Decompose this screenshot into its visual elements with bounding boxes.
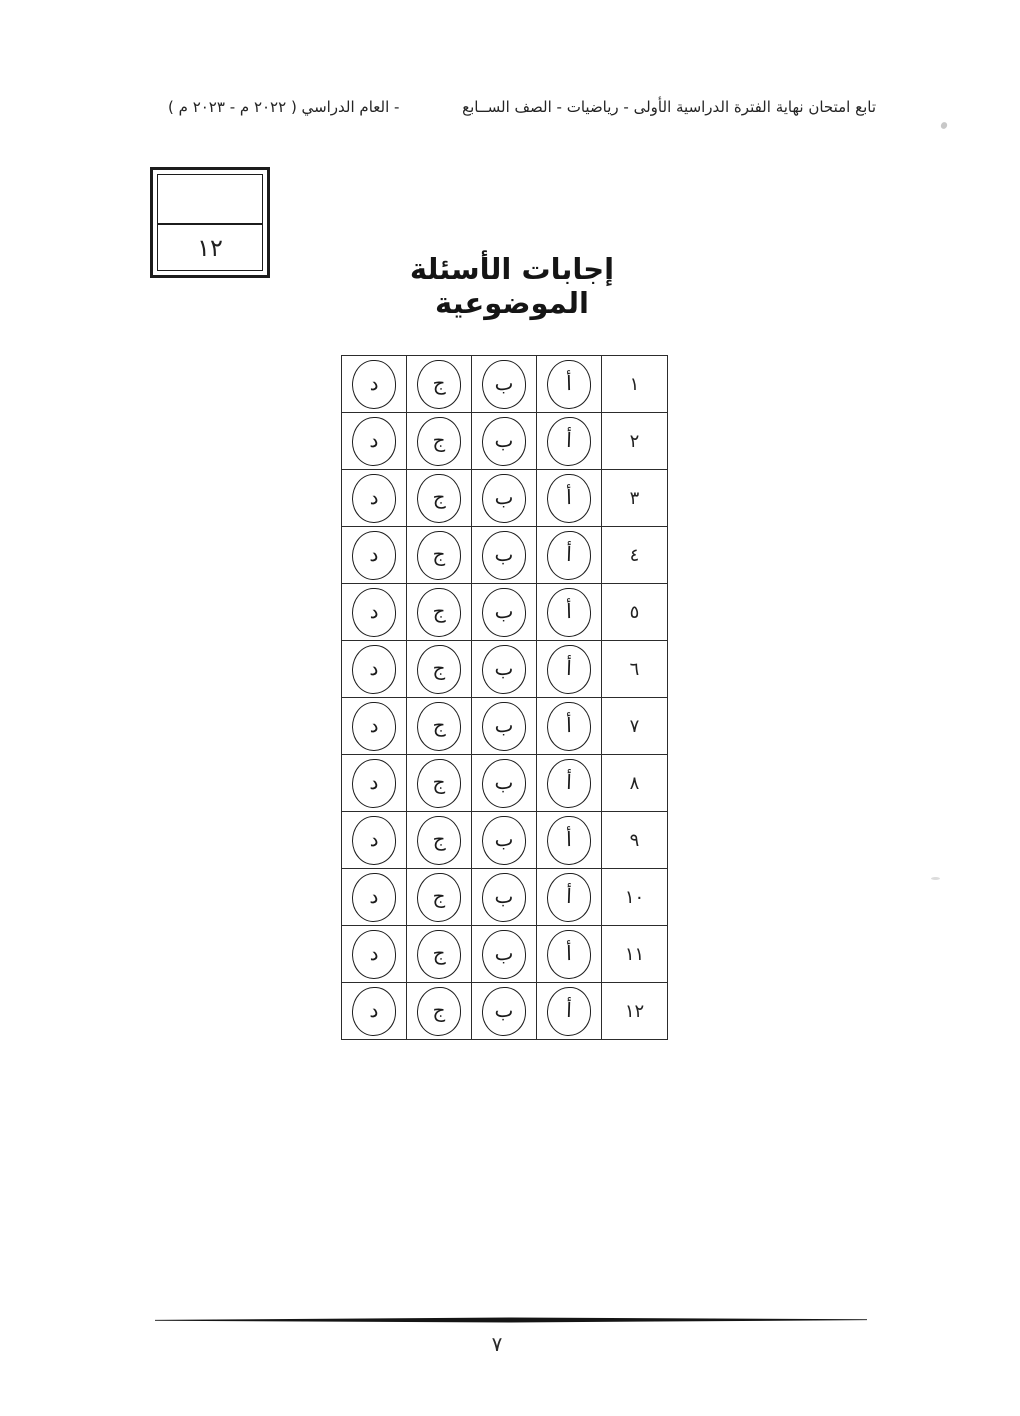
choice-cell: د bbox=[342, 755, 407, 812]
circled-choice-letter: د bbox=[351, 530, 397, 581]
question-number: ١٠ bbox=[602, 869, 668, 926]
answer-row: ١٢أبجد bbox=[342, 983, 668, 1040]
question-number: ٤ bbox=[602, 527, 668, 584]
choice-cell: ب bbox=[472, 926, 537, 983]
grade-box: ١٢ bbox=[150, 167, 270, 278]
circled-choice-letter: ج bbox=[416, 416, 462, 467]
circled-choice-letter: ج bbox=[416, 587, 461, 637]
choice-cell: ج bbox=[407, 812, 472, 869]
answer-row: ٦أبجد bbox=[342, 641, 668, 698]
scan-artifact bbox=[931, 877, 940, 880]
choice-cell: ب bbox=[472, 641, 537, 698]
circled-choice-letter: د bbox=[351, 644, 397, 695]
question-number: ٧ bbox=[602, 698, 668, 755]
circled-choice-letter: ب bbox=[481, 530, 527, 581]
answer-row: ١أبجد bbox=[342, 356, 668, 413]
choice-cell: ب bbox=[472, 356, 537, 413]
answer-row: ١٠أبجد bbox=[342, 869, 668, 926]
question-number: ٣ bbox=[602, 470, 668, 527]
answers-table: ١أبجد٢أبجد٣أبجد٤أبجد٥أبجد٦أبجد٧أبجد٨أبجد… bbox=[341, 355, 668, 1040]
choice-cell: ب bbox=[472, 470, 537, 527]
choice-cell: أ bbox=[537, 584, 602, 641]
page-header: تابع امتحان نهاية الفترة الدراسية الأولى… bbox=[168, 98, 876, 116]
circled-choice-letter: أ bbox=[546, 473, 591, 523]
choice-cell: ج bbox=[407, 527, 472, 584]
choice-cell: ج bbox=[407, 755, 472, 812]
grade-box-empty-cell bbox=[158, 175, 262, 225]
choice-cell: أ bbox=[537, 413, 602, 470]
question-number: ٢ bbox=[602, 413, 668, 470]
circled-choice-letter: د bbox=[351, 872, 397, 923]
circled-choice-letter: ب bbox=[481, 815, 526, 865]
circled-choice-letter: ج bbox=[416, 872, 462, 923]
question-number: ٨ bbox=[602, 755, 668, 812]
circled-choice-letter: ب bbox=[481, 644, 527, 695]
circled-choice-letter: ب bbox=[481, 587, 526, 637]
answer-row: ٩أبجد bbox=[342, 812, 668, 869]
answers-table-body: ١أبجد٢أبجد٣أبجد٤أبجد٥أبجد٦أبجد٧أبجد٨أبجد… bbox=[342, 356, 668, 1040]
circled-choice-letter: أ bbox=[546, 359, 591, 409]
circled-choice-letter: د bbox=[351, 986, 397, 1037]
circled-choice-letter: د bbox=[351, 929, 396, 979]
scanned-exam-page: تابع امتحان نهاية الفترة الدراسية الأولى… bbox=[0, 0, 1020, 1416]
choice-cell: ب bbox=[472, 983, 537, 1040]
choice-cell: د bbox=[342, 869, 407, 926]
circled-choice-letter: أ bbox=[546, 587, 591, 637]
answer-row: ٢أبجد bbox=[342, 413, 668, 470]
circled-choice-letter: أ bbox=[546, 758, 592, 809]
answer-row: ٤أبجد bbox=[342, 527, 668, 584]
choice-cell: د bbox=[342, 641, 407, 698]
choice-cell: د bbox=[342, 413, 407, 470]
circled-choice-letter: ب bbox=[481, 758, 527, 809]
choice-cell: ب bbox=[472, 527, 537, 584]
circled-choice-letter: د bbox=[351, 587, 396, 637]
choice-cell: أ bbox=[537, 356, 602, 413]
answer-row: ٨أبجد bbox=[342, 755, 668, 812]
circled-choice-letter: د bbox=[351, 815, 396, 865]
answer-row: ١١أبجد bbox=[342, 926, 668, 983]
circled-choice-letter: ج bbox=[416, 359, 461, 409]
choice-cell: د bbox=[342, 527, 407, 584]
question-number: ٥ bbox=[602, 584, 668, 641]
page-number: ٧ bbox=[477, 1332, 517, 1356]
choice-cell: ج bbox=[407, 584, 472, 641]
circled-choice-letter: أ bbox=[546, 929, 591, 979]
circled-choice-letter: أ bbox=[546, 530, 592, 581]
choice-cell: ب bbox=[472, 869, 537, 926]
question-number: ١ bbox=[602, 356, 668, 413]
page-title: إجابات الأسئلة الموضوعية bbox=[372, 252, 652, 320]
circled-choice-letter: أ bbox=[546, 644, 592, 695]
choice-cell: أ bbox=[537, 869, 602, 926]
circled-choice-letter: ب bbox=[481, 872, 527, 923]
circled-choice-letter: ج bbox=[416, 701, 461, 751]
circled-choice-letter: ج bbox=[416, 644, 462, 695]
circled-choice-letter: د bbox=[351, 701, 396, 751]
choice-cell: أ bbox=[537, 470, 602, 527]
circled-choice-letter: أ bbox=[546, 815, 591, 865]
circled-choice-letter: ب bbox=[481, 473, 526, 523]
answer-row: ٣أبجد bbox=[342, 470, 668, 527]
circled-choice-letter: ج bbox=[416, 473, 461, 523]
choice-cell: أ bbox=[537, 698, 602, 755]
choice-cell: ب bbox=[472, 698, 537, 755]
choice-cell: د bbox=[342, 470, 407, 527]
circled-choice-letter: د bbox=[351, 416, 397, 467]
question-number: ٩ bbox=[602, 812, 668, 869]
footer-rule bbox=[155, 1317, 867, 1323]
circled-choice-letter: د bbox=[351, 473, 396, 523]
choice-cell: ج bbox=[407, 470, 472, 527]
choice-cell: د bbox=[342, 983, 407, 1040]
answer-row: ٧أبجد bbox=[342, 698, 668, 755]
circled-choice-letter: ج bbox=[416, 530, 462, 581]
grade-box-score: ١٢ bbox=[158, 225, 262, 270]
circled-choice-letter: ب bbox=[481, 986, 527, 1037]
circled-choice-letter: ب bbox=[481, 359, 526, 409]
choice-cell: د bbox=[342, 584, 407, 641]
choice-cell: ج bbox=[407, 356, 472, 413]
choice-cell: د bbox=[342, 812, 407, 869]
circled-choice-letter: ب bbox=[481, 929, 526, 979]
circled-choice-letter: د bbox=[351, 758, 397, 809]
choice-cell: ج bbox=[407, 413, 472, 470]
choice-cell: أ bbox=[537, 926, 602, 983]
question-number: ١١ bbox=[602, 926, 668, 983]
choice-cell: ج bbox=[407, 926, 472, 983]
circled-choice-letter: ج bbox=[416, 758, 462, 809]
choice-cell: أ bbox=[537, 983, 602, 1040]
circled-choice-letter: ج bbox=[416, 929, 461, 979]
circled-choice-letter: ب bbox=[481, 416, 527, 467]
choice-cell: ج bbox=[407, 869, 472, 926]
choice-cell: أ bbox=[537, 755, 602, 812]
choice-cell: د bbox=[342, 698, 407, 755]
choice-cell: د bbox=[342, 926, 407, 983]
choice-cell: أ bbox=[537, 527, 602, 584]
question-number: ١٢ bbox=[602, 983, 668, 1040]
circled-choice-letter: ج bbox=[416, 815, 461, 865]
header-school-year-text: - العام الدراسي ( ٢٠٢٢ م - ٢٠٢٣ م ) bbox=[168, 98, 399, 116]
circled-choice-letter: أ bbox=[546, 986, 592, 1037]
choice-cell: أ bbox=[537, 812, 602, 869]
header-exam-text: تابع امتحان نهاية الفترة الدراسية الأولى… bbox=[462, 98, 876, 116]
circled-choice-letter: أ bbox=[546, 416, 592, 467]
choice-cell: ب bbox=[472, 584, 537, 641]
choice-cell: ب bbox=[472, 812, 537, 869]
circled-choice-letter: د bbox=[351, 359, 396, 409]
choice-cell: ج bbox=[407, 698, 472, 755]
circled-choice-letter: ج bbox=[416, 986, 462, 1037]
choice-cell: أ bbox=[537, 641, 602, 698]
choice-cell: ب bbox=[472, 413, 537, 470]
circled-choice-letter: أ bbox=[546, 701, 591, 751]
answer-row: ٥أبجد bbox=[342, 584, 668, 641]
choice-cell: ب bbox=[472, 755, 537, 812]
circled-choice-letter: أ bbox=[546, 872, 592, 923]
question-number: ٦ bbox=[602, 641, 668, 698]
choice-cell: د bbox=[342, 356, 407, 413]
scan-artifact bbox=[940, 121, 949, 130]
circled-choice-letter: ب bbox=[481, 701, 526, 751]
choice-cell: ج bbox=[407, 641, 472, 698]
grade-box-inner: ١٢ bbox=[157, 174, 263, 271]
choice-cell: ج bbox=[407, 983, 472, 1040]
